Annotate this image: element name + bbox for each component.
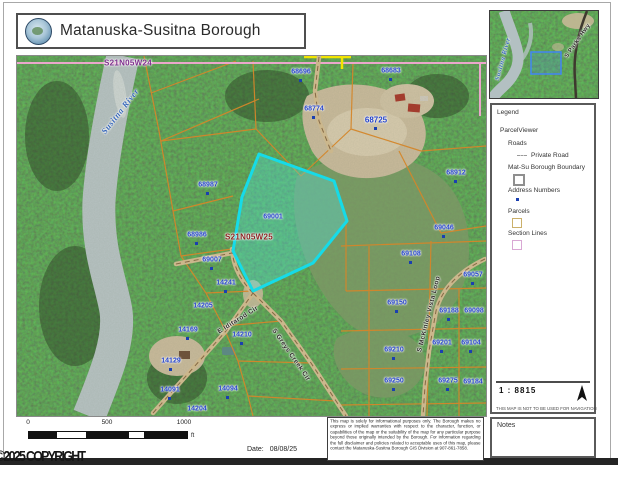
address-number-dot	[240, 342, 243, 345]
address-number-dot	[206, 192, 209, 195]
parcels-symbol	[512, 218, 522, 228]
address-number-dot	[395, 310, 398, 313]
disclaimer-text: This map is solely for informational pur…	[328, 418, 483, 453]
address-number-dot	[374, 127, 377, 130]
notes-panel: Notes	[490, 417, 596, 458]
parcel-number-label: 14205	[193, 303, 212, 310]
scalebar	[28, 431, 188, 439]
road-name-label: Susitna River	[99, 86, 141, 136]
legend-divider	[496, 381, 590, 383]
scalebar-tick-500: 500	[102, 419, 113, 426]
date-value: 08/08/25	[270, 446, 297, 453]
scalebar-tick-0: 0	[26, 419, 30, 426]
parcel-number-label: 68774	[304, 106, 323, 113]
address-number-dot	[226, 396, 229, 399]
inset-overview-map: Susitna RiverS Parks Hwy	[489, 10, 599, 99]
address-number-dot	[469, 350, 472, 353]
parcel-number-label: 14094	[218, 386, 237, 393]
date-line: Date:08/08/25	[247, 446, 297, 453]
map-canvas: 6869668683687746872568912690466898768986…	[16, 55, 487, 417]
legend-item-borough-boundary: Mat-Su Borough Boundary	[508, 164, 585, 171]
parcel-number-label: 68912	[446, 170, 465, 177]
section-township-label: S21N05W24	[104, 59, 152, 68]
inset-label-layer: Susitna RiverS Parks Hwy	[490, 11, 598, 98]
parcel-number-label: 14091	[160, 387, 179, 394]
parcel-number-label: 69104	[461, 340, 480, 347]
parcel-number-label: 68987	[198, 182, 217, 189]
address-number-dot	[210, 267, 213, 270]
section-township-label: S21N05W25	[225, 233, 273, 242]
page-title: Matanuska-Susitna Borough	[60, 22, 261, 40]
scalebar-tick-1000: 1000	[177, 419, 191, 426]
address-number-dot	[299, 79, 302, 82]
inset-label: Susitna River	[494, 37, 512, 81]
parcel-number-label: 14129	[161, 358, 180, 365]
road-name-label: S Greys Creek Cir	[270, 328, 311, 383]
parcel-number-label: 69188	[439, 308, 458, 315]
address-number-dot	[389, 78, 392, 81]
parcel-number-label: 69007	[202, 257, 221, 264]
parcel-number-label: 69108	[401, 251, 420, 258]
map-scale-ratio: 1 : 8815	[499, 386, 536, 395]
page-bottom-rule	[0, 458, 618, 465]
parcel-number-label: 69150	[387, 300, 406, 307]
parcel-number-label: 68986	[187, 232, 206, 239]
legend-item-section-lines: Section Lines	[508, 230, 547, 237]
address-number-dot	[312, 116, 315, 119]
parcel-number-label: 14210	[232, 332, 251, 339]
map-label-layer: 6869668683687746872568912690466898768986…	[17, 56, 486, 416]
navigation-warning: THIS MAP IS NOT TO BE USED FOR NAVIGATIO…	[496, 407, 591, 411]
borough-seal-icon	[25, 18, 52, 45]
parcel-number-label: 14169	[178, 327, 197, 334]
notes-label: Notes	[497, 422, 515, 429]
address-number-dot	[224, 290, 227, 293]
parcel-number-label: 69098	[464, 308, 483, 315]
address-number-dot	[392, 388, 395, 391]
legend-panel: Legend ParcelViewer Roads Private Road M…	[490, 103, 596, 414]
parcel-number-label: 68725	[365, 116, 387, 125]
north-arrow-icon	[576, 384, 588, 404]
address-number-dot	[168, 397, 171, 400]
address-number-dot	[195, 242, 198, 245]
parcel-number-label: 14241	[216, 280, 235, 287]
parcel-number-label: 69250	[384, 378, 403, 385]
address-number-dot	[392, 357, 395, 360]
inset-label: S Parks Hwy	[564, 23, 592, 60]
legend-item-parcels: Parcels	[508, 208, 530, 215]
title-bar: Matanuska-Susitna Borough	[16, 13, 306, 49]
legend-item-private-road: Private Road	[517, 152, 569, 159]
print-page: Matanuska-Susitna Borough	[0, 0, 618, 479]
address-number-symbol	[516, 198, 519, 201]
parcel-number-label: 69057	[463, 272, 482, 279]
parcel-number-label: 69184	[463, 379, 482, 386]
legend-roads-header: Roads	[508, 140, 527, 147]
address-number-dot	[442, 235, 445, 238]
private-road-dash-icon	[517, 155, 527, 156]
parcel-number-label: 69001	[263, 214, 282, 221]
borough-boundary-symbol	[513, 174, 525, 186]
copyright-watermark: ©2025 COPYRIGHT	[0, 448, 84, 465]
address-number-dot	[186, 337, 189, 340]
scalebar-unit: ft	[191, 433, 194, 439]
address-number-dot	[169, 368, 172, 371]
address-number-dot	[440, 350, 443, 353]
parcel-number-label: 69046	[434, 225, 453, 232]
legend-item-address-numbers: Address Numbers	[508, 187, 560, 194]
legend-title: Legend	[497, 109, 519, 116]
address-number-dot	[409, 261, 412, 264]
parcel-number-label: 69275	[438, 378, 457, 385]
date-label: Date:	[247, 446, 264, 453]
section-lines-symbol	[512, 240, 522, 250]
parcel-number-label: 14204	[187, 406, 206, 413]
address-number-dot	[446, 388, 449, 391]
address-number-dot	[471, 282, 474, 285]
disclaimer-box: This map is solely for informational pur…	[327, 417, 484, 461]
parcel-number-label: 68696	[291, 69, 310, 76]
address-number-dot	[447, 318, 450, 321]
parcel-number-label: 69201	[432, 340, 451, 347]
parcel-number-label: 69210	[384, 347, 403, 354]
legend-group-parcelviewer: ParcelViewer	[500, 127, 538, 134]
address-number-dot	[454, 180, 457, 183]
parcel-number-label: 68683	[381, 68, 400, 75]
